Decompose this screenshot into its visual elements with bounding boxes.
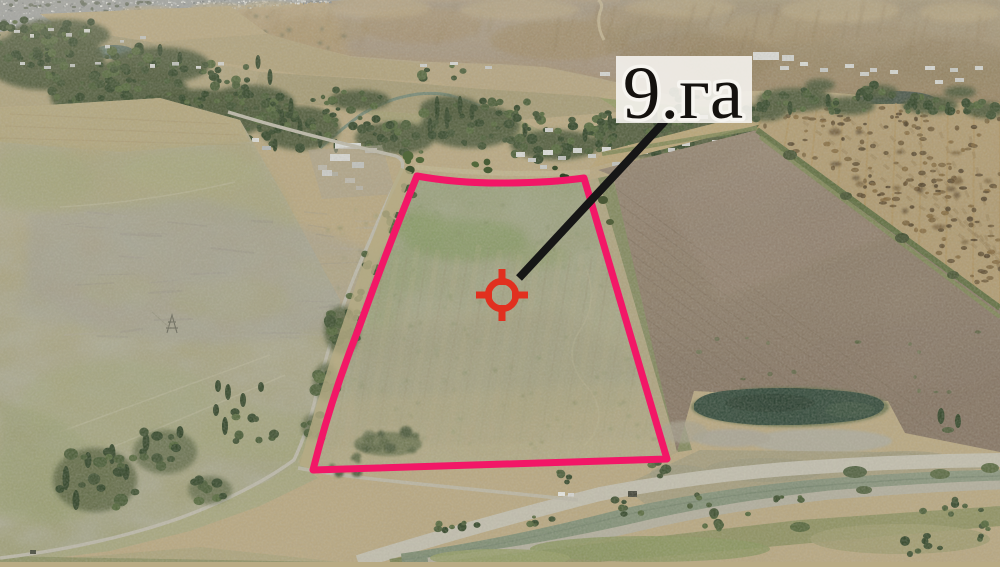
svg-text:9.га: 9.га [623, 52, 743, 135]
